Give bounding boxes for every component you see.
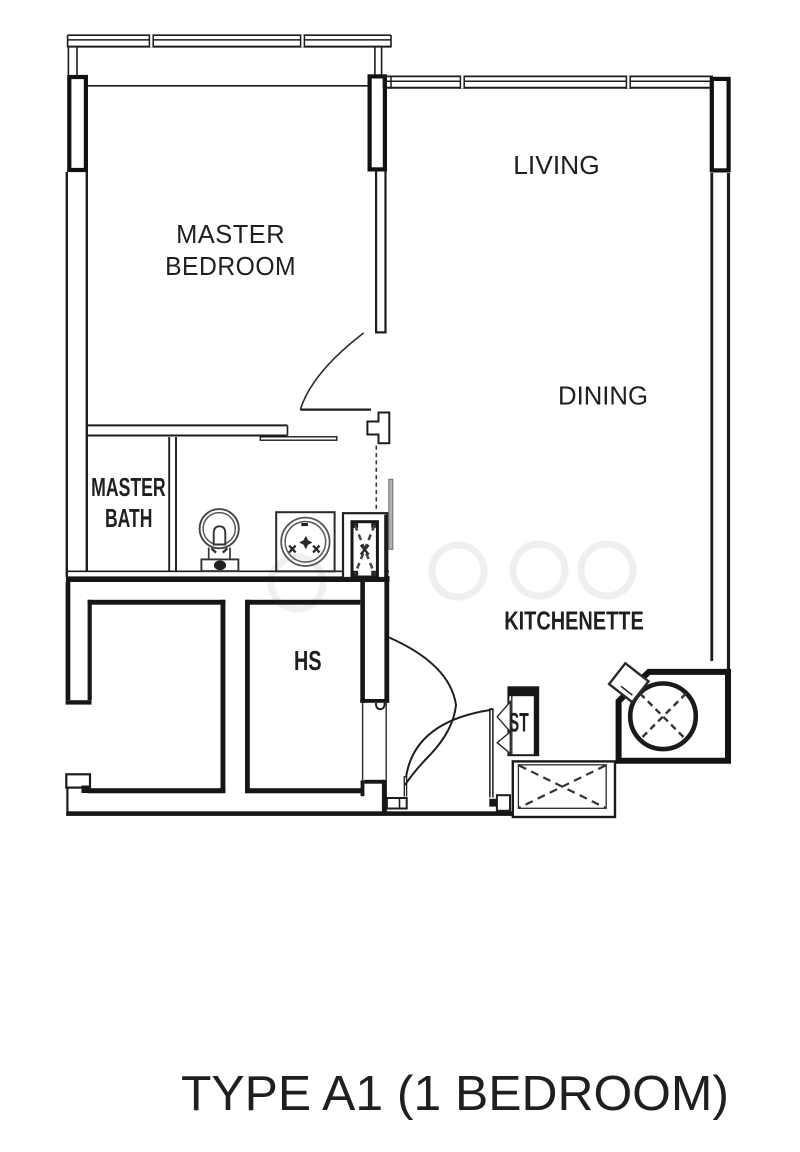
svg-text:TYPE A1 (1 BEDROOM): TYPE A1 (1 BEDROOM) <box>181 1066 729 1121</box>
svg-text:KITCHENETTE: KITCHENETTE <box>504 607 644 635</box>
svg-text:MASTER: MASTER <box>91 472 166 502</box>
svg-text:BEDROOM: BEDROOM <box>165 251 296 281</box>
svg-text:MASTER: MASTER <box>176 219 285 249</box>
svg-text:LIVING: LIVING <box>513 150 600 180</box>
svg-text:ST: ST <box>509 708 529 738</box>
svg-text:DINING: DINING <box>558 381 648 411</box>
svg-text:BATH: BATH <box>105 503 153 533</box>
svg-text:HS: HS <box>294 645 322 676</box>
